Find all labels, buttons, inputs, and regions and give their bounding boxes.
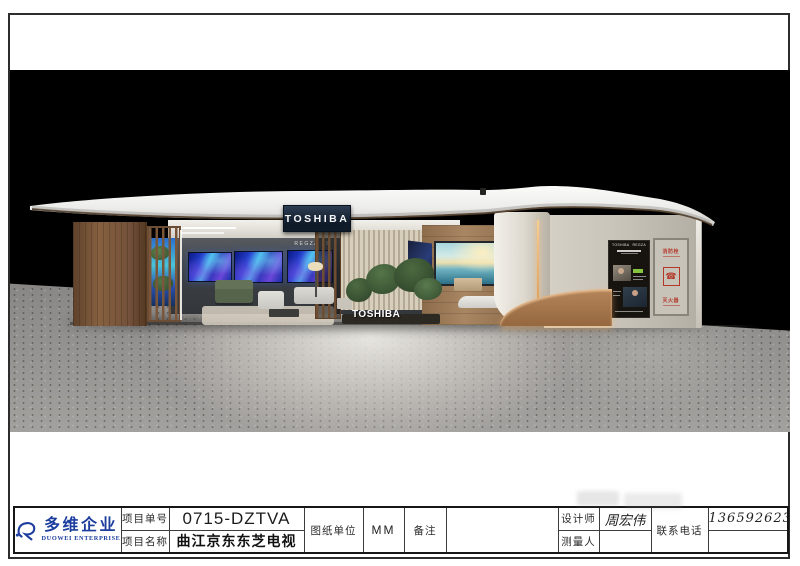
poster-caption-line (613, 291, 621, 292)
fire-extinguisher-label: 灭火器 (663, 297, 680, 304)
toshiba-fascia-sign: TOSHIBA (283, 205, 351, 232)
canopy-fascia (20, 175, 750, 245)
floor-lamp-shade (308, 262, 323, 271)
tv-screen-2 (234, 251, 283, 283)
poster-headline (617, 250, 641, 252)
project-name-value: 曲江京东东芝电视 (169, 530, 304, 553)
booth-rendering: REGZA Z8 TOSHIBA TOSHIBA REGZA (10, 70, 790, 432)
toshiba-floor-letters: TOSHIBA (352, 309, 436, 320)
bonsai-plant (414, 278, 442, 300)
designer-label: 设计师 (558, 507, 599, 530)
company-logo-cell: 多维企业 DUOWEI ENTERPRISE (14, 507, 121, 553)
surveyor-label: 测量人 (558, 530, 599, 553)
fire-hydrant-subline (663, 256, 680, 257)
company-name-cn: 多维企业 (44, 518, 118, 534)
coffee-table (269, 309, 299, 317)
roof-spotlight (480, 188, 486, 195)
fire-extinguisher-subline (663, 305, 680, 306)
poster-caption-line (613, 295, 620, 296)
white-armchair (258, 291, 284, 309)
title-block: 多维企业 DUOWEI ENTERPRISE 项目单号 0715-DZTVA 图… (13, 506, 789, 554)
phone-value: 13659262305 (708, 507, 788, 530)
tv-screen-1 (188, 252, 232, 282)
project-no-value: 0715-DZTVA (169, 507, 304, 530)
project-name-label: 项目名称 (121, 530, 169, 553)
poster-caption-line (633, 279, 643, 280)
poster-portrait-photo (613, 265, 631, 281)
unit-value: MM (363, 507, 404, 553)
phone-empty-cell (708, 530, 788, 553)
remark-label: 备注 (404, 507, 446, 553)
remark-value (446, 507, 558, 553)
fire-hydrant-label: 消防栓 (663, 248, 680, 255)
watermark-artifact (577, 491, 619, 506)
poster-caption-line (615, 311, 643, 312)
poster-green-tag (633, 269, 643, 273)
sideboard (454, 278, 482, 291)
floor-light-pool-right (570, 325, 770, 415)
project-no-label: 项目单号 (121, 507, 169, 530)
designer-value: 周宏伟 (599, 507, 651, 530)
fire-phone-icon: ☎ (663, 267, 680, 286)
white-sofa (294, 287, 334, 304)
watermark-artifact (624, 493, 682, 509)
fire-equipment-panel: 消防栓 ☎ 灭火器 (653, 238, 689, 316)
surveyor-value (599, 530, 651, 553)
poster-subline (621, 253, 638, 254)
poster-caption-line (633, 276, 646, 277)
phone-label: 联系电话 (651, 507, 708, 553)
floor-lamp-pole (315, 269, 317, 297)
green-sofa (215, 280, 253, 303)
duowei-logo-icon (15, 514, 38, 546)
company-name-en: DUOWEI ENTERPRISE (42, 536, 121, 542)
unit-label: 图纸单位 (304, 507, 363, 553)
brand-poster: TOSHIBA REGZA (608, 240, 650, 318)
poster-portrait-photo-2 (623, 287, 647, 307)
